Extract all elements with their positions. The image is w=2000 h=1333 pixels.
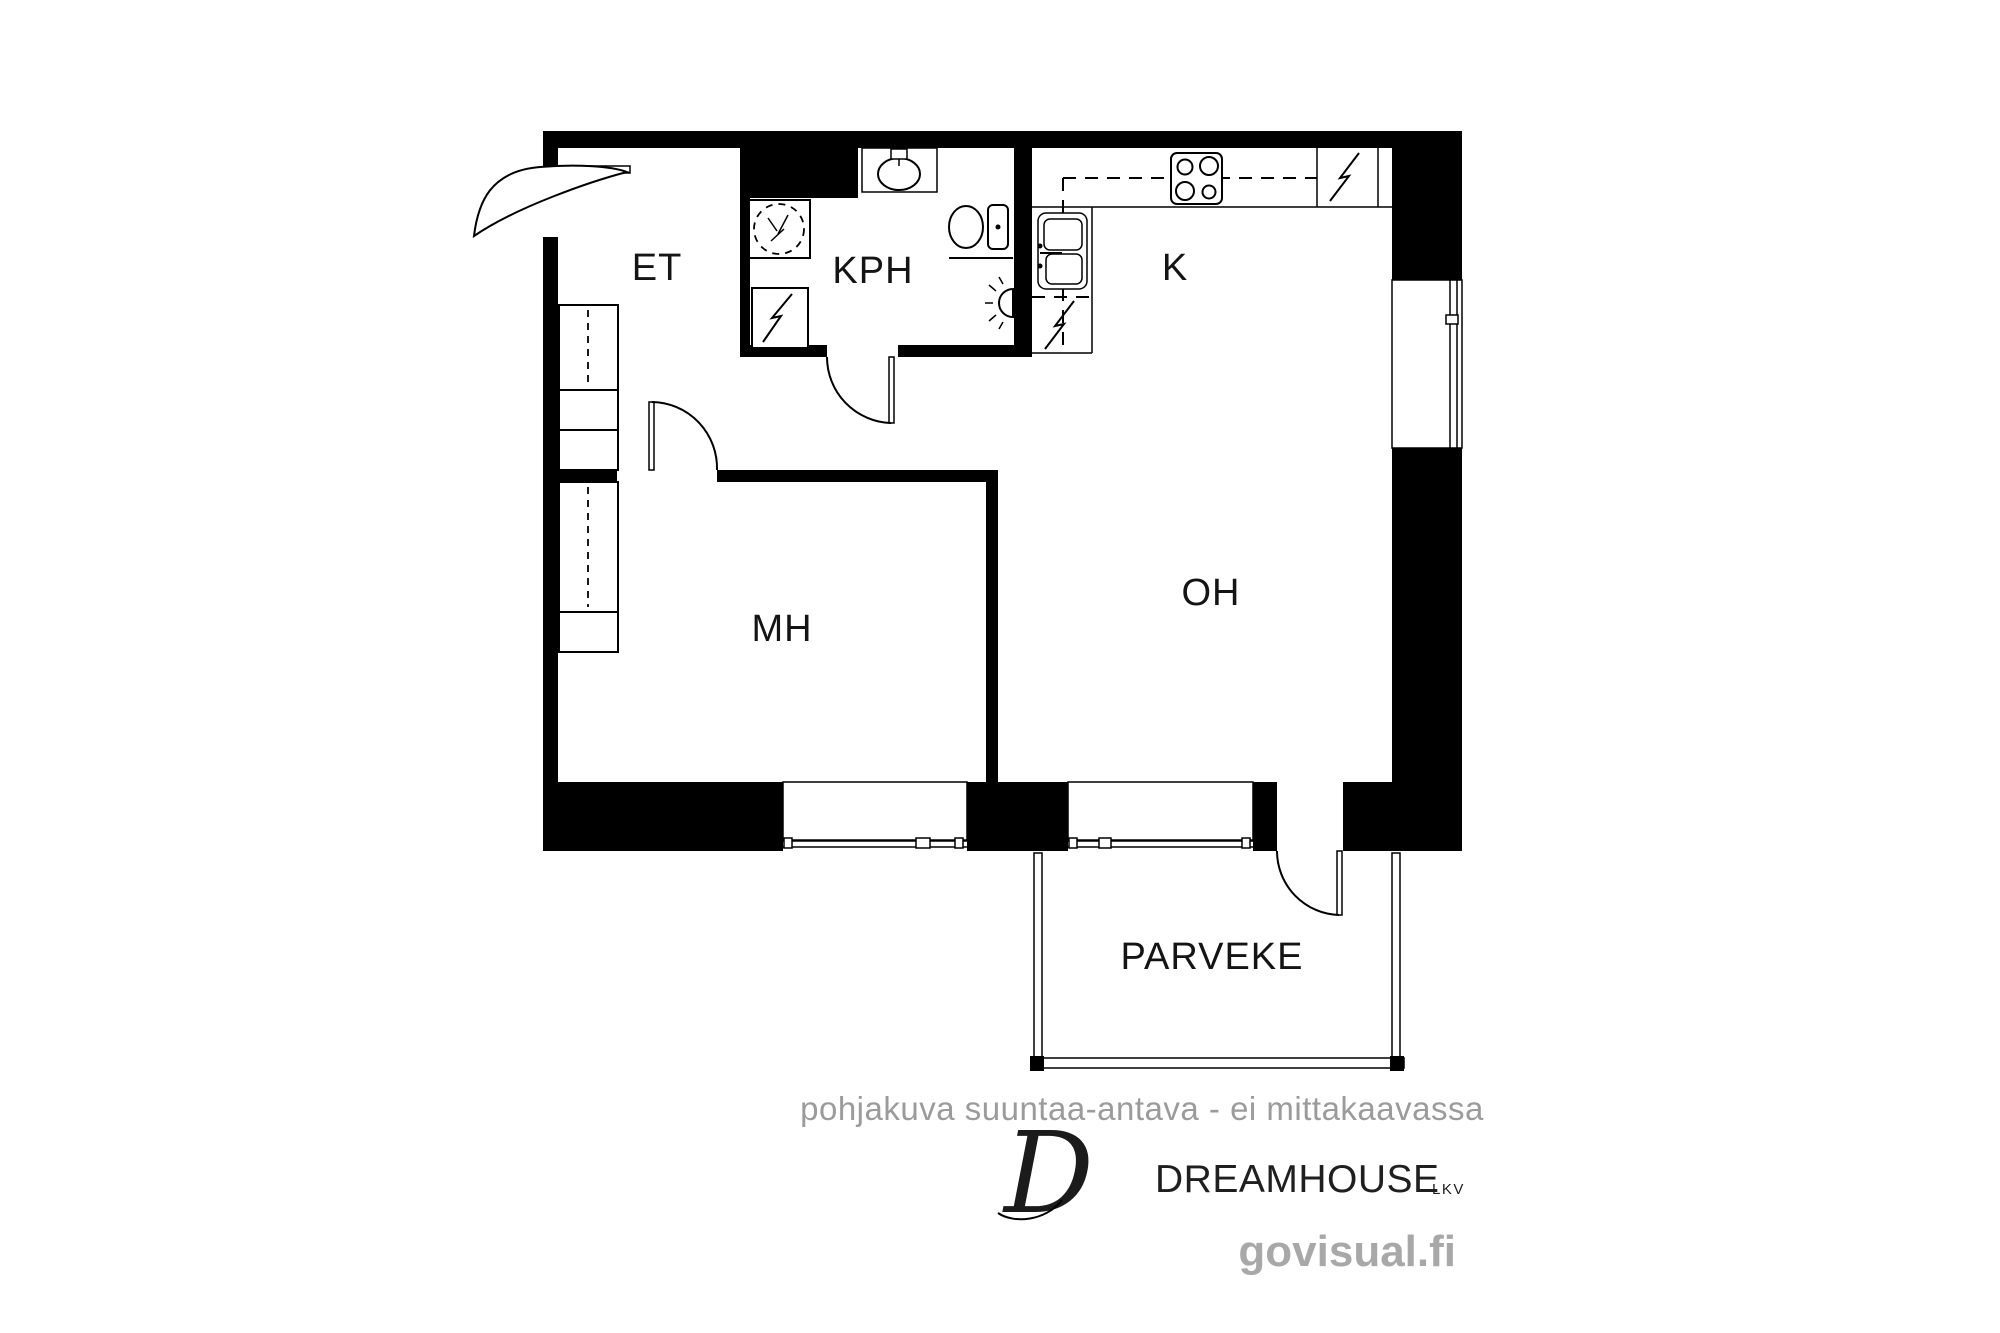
window-opening <box>783 782 967 841</box>
wall-segment <box>543 782 783 851</box>
window-kitchen <box>1392 280 1462 448</box>
wall-segment <box>543 131 1462 148</box>
window-mullion <box>1242 838 1250 848</box>
window-opening <box>1392 280 1462 448</box>
bathroom-sink-icon <box>862 148 937 192</box>
watermark-text: govisual.fi <box>1238 1227 1456 1276</box>
brand-name: DREAMHOUSE <box>1155 1158 1440 1201</box>
electric-appliance-icon <box>752 288 808 348</box>
room-label-parveke: PARVEKE <box>1120 936 1303 978</box>
window-mullion <box>916 838 930 848</box>
bathroom-door-leaf <box>889 357 894 423</box>
window-mullion <box>1446 315 1458 324</box>
window-mullion <box>784 838 792 848</box>
railing-right <box>1392 853 1400 1058</box>
brand-logo: D DREAMHOUSE LKV <box>998 1109 1465 1239</box>
window-mullion <box>955 838 963 848</box>
room-label-mh: MH <box>751 608 812 650</box>
window-opening <box>1068 782 1253 841</box>
bedroom-door-leaf <box>649 402 654 470</box>
disclaimer-text: pohjakuva suuntaa-antava - ei mittakaava… <box>800 1090 1484 1127</box>
wall-light-icon <box>985 277 1013 329</box>
sink-tap <box>891 149 907 159</box>
railing-bottom <box>1034 1058 1404 1068</box>
wardrobe <box>559 612 618 652</box>
wall-segment <box>1392 131 1462 280</box>
wall-segment <box>740 148 858 198</box>
windows <box>783 280 1462 848</box>
wardrobe <box>559 390 618 430</box>
wall-segment <box>1392 448 1462 782</box>
bathroom-door-swing-arc <box>827 357 891 423</box>
bedroom-door <box>649 402 717 470</box>
wall-segment <box>898 345 1032 357</box>
wall-light-dome <box>999 289 1013 317</box>
toilet-bowl <box>949 206 983 248</box>
kitchen-fixtures <box>1032 148 1392 353</box>
wall-segment <box>543 148 558 167</box>
bedroom-door-swing-arc <box>652 402 717 470</box>
footer: pohjakuva suuntaa-antava - ei mittakaava… <box>800 1090 1484 1276</box>
balcony-door-swing-arc <box>1277 851 1339 915</box>
washing-machine-icon <box>749 200 810 258</box>
sink-tap-dot <box>1038 264 1043 269</box>
wall-segment <box>986 470 998 782</box>
lightning-bolt-icon <box>1330 153 1359 201</box>
dishwasher-icon <box>1045 301 1074 349</box>
wardrobe <box>559 430 618 470</box>
washing-machine-box <box>749 200 810 258</box>
wall-segment <box>1343 782 1462 851</box>
room-label-oh: OH <box>1182 572 1241 614</box>
wall-segment <box>967 782 1068 851</box>
toilet-button <box>996 225 1001 230</box>
window-mullion <box>1099 838 1111 848</box>
floor-plan: ET KPH K OH MH PARVEKE pohjakuva suuntaa… <box>0 0 2000 1333</box>
stove-icon <box>1171 153 1222 204</box>
window-mullion <box>1069 838 1077 848</box>
floor-plan-page: ET KPH K OH MH PARVEKE pohjakuva suuntaa… <box>0 0 2000 1333</box>
entry-door-leaf <box>474 166 627 236</box>
railing-post <box>1390 1056 1404 1071</box>
window-livingroom <box>1068 782 1253 848</box>
room-label-et: ET <box>632 247 683 289</box>
electric-appliance-kitchen-icon <box>1330 153 1359 201</box>
room-label-kph: KPH <box>832 250 913 292</box>
brand-suffix: LKV <box>1432 1181 1465 1198</box>
lightning-bolt-icon <box>1045 301 1074 349</box>
wall-segment <box>717 470 998 482</box>
wall-segment <box>558 470 617 482</box>
entry-door <box>474 166 630 236</box>
room-label-k: K <box>1162 247 1188 289</box>
window-bedroom <box>783 782 967 848</box>
balcony-door-leaf <box>1337 851 1342 915</box>
toilet-icon <box>949 205 1008 249</box>
railing-post <box>1030 1056 1044 1071</box>
sink-tap-dot <box>1038 244 1043 249</box>
wall-segment <box>1014 148 1032 357</box>
wall-segment <box>1253 782 1277 851</box>
kitchen-sink-icon <box>1038 213 1088 289</box>
railing-left <box>1034 853 1042 1058</box>
bathroom-door <box>827 357 894 423</box>
wall-segment <box>543 237 558 783</box>
balcony-door <box>1277 851 1342 915</box>
